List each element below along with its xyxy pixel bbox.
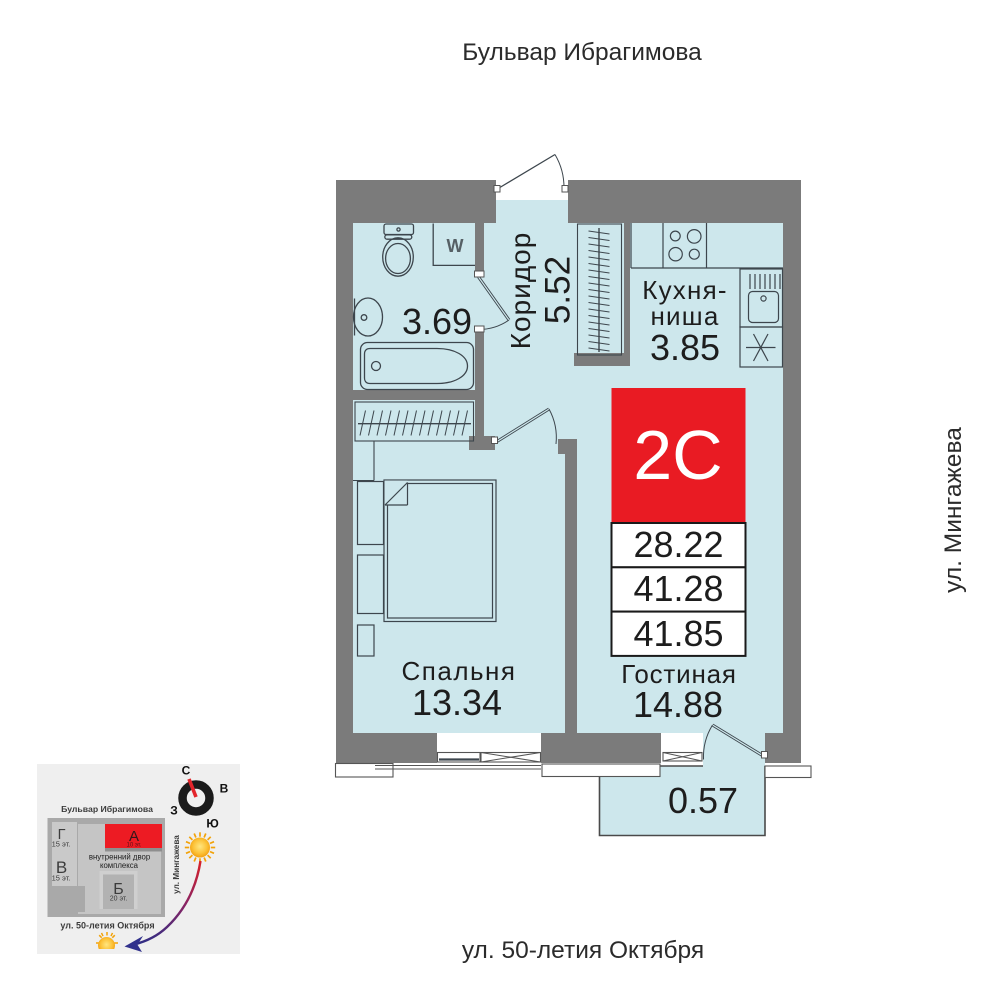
svg-text:2C: 2C (633, 416, 722, 494)
svg-text:З: З (170, 804, 178, 818)
svg-text:В: В (220, 782, 229, 796)
svg-text:41.85: 41.85 (633, 613, 723, 654)
svg-text:41.28: 41.28 (633, 568, 723, 609)
svg-text:Бульвар Ибрагимова: Бульвар Ибрагимова (61, 804, 153, 814)
svg-text:комплекса: комплекса (100, 861, 139, 870)
svg-text:С: С (182, 764, 191, 778)
svg-text:ул. 50-летия Октября: ул. 50-летия Октября (60, 921, 154, 931)
svg-text:14.88: 14.88 (633, 684, 723, 725)
svg-text:ул. Мингажева: ул. Мингажева (172, 835, 181, 894)
svg-text:13.34: 13.34 (412, 682, 502, 723)
svg-text:5.52: 5.52 (539, 256, 578, 324)
svg-text:Ю: Ю (206, 817, 218, 831)
svg-text:10 эт.: 10 эт. (126, 843, 141, 849)
svg-text:Коридор: Коридор (505, 232, 536, 350)
svg-text:0.57: 0.57 (668, 780, 738, 821)
svg-text:3.69: 3.69 (402, 301, 472, 342)
svg-text:ул. Мингажева: ул. Мингажева (940, 427, 967, 593)
svg-text:28.22: 28.22 (633, 524, 723, 565)
svg-text:3.85: 3.85 (650, 327, 720, 368)
svg-text:20 эт.: 20 эт. (110, 896, 128, 903)
svg-text:15 эт.: 15 эт. (52, 840, 71, 849)
svg-text:ул. 50-летия Октября: ул. 50-летия Октября (462, 937, 704, 964)
svg-text:15 эт.: 15 эт. (52, 874, 71, 883)
svg-text:W: W (447, 236, 464, 256)
svg-text:Бульвар Ибрагимова: Бульвар Ибрагимова (462, 39, 702, 66)
